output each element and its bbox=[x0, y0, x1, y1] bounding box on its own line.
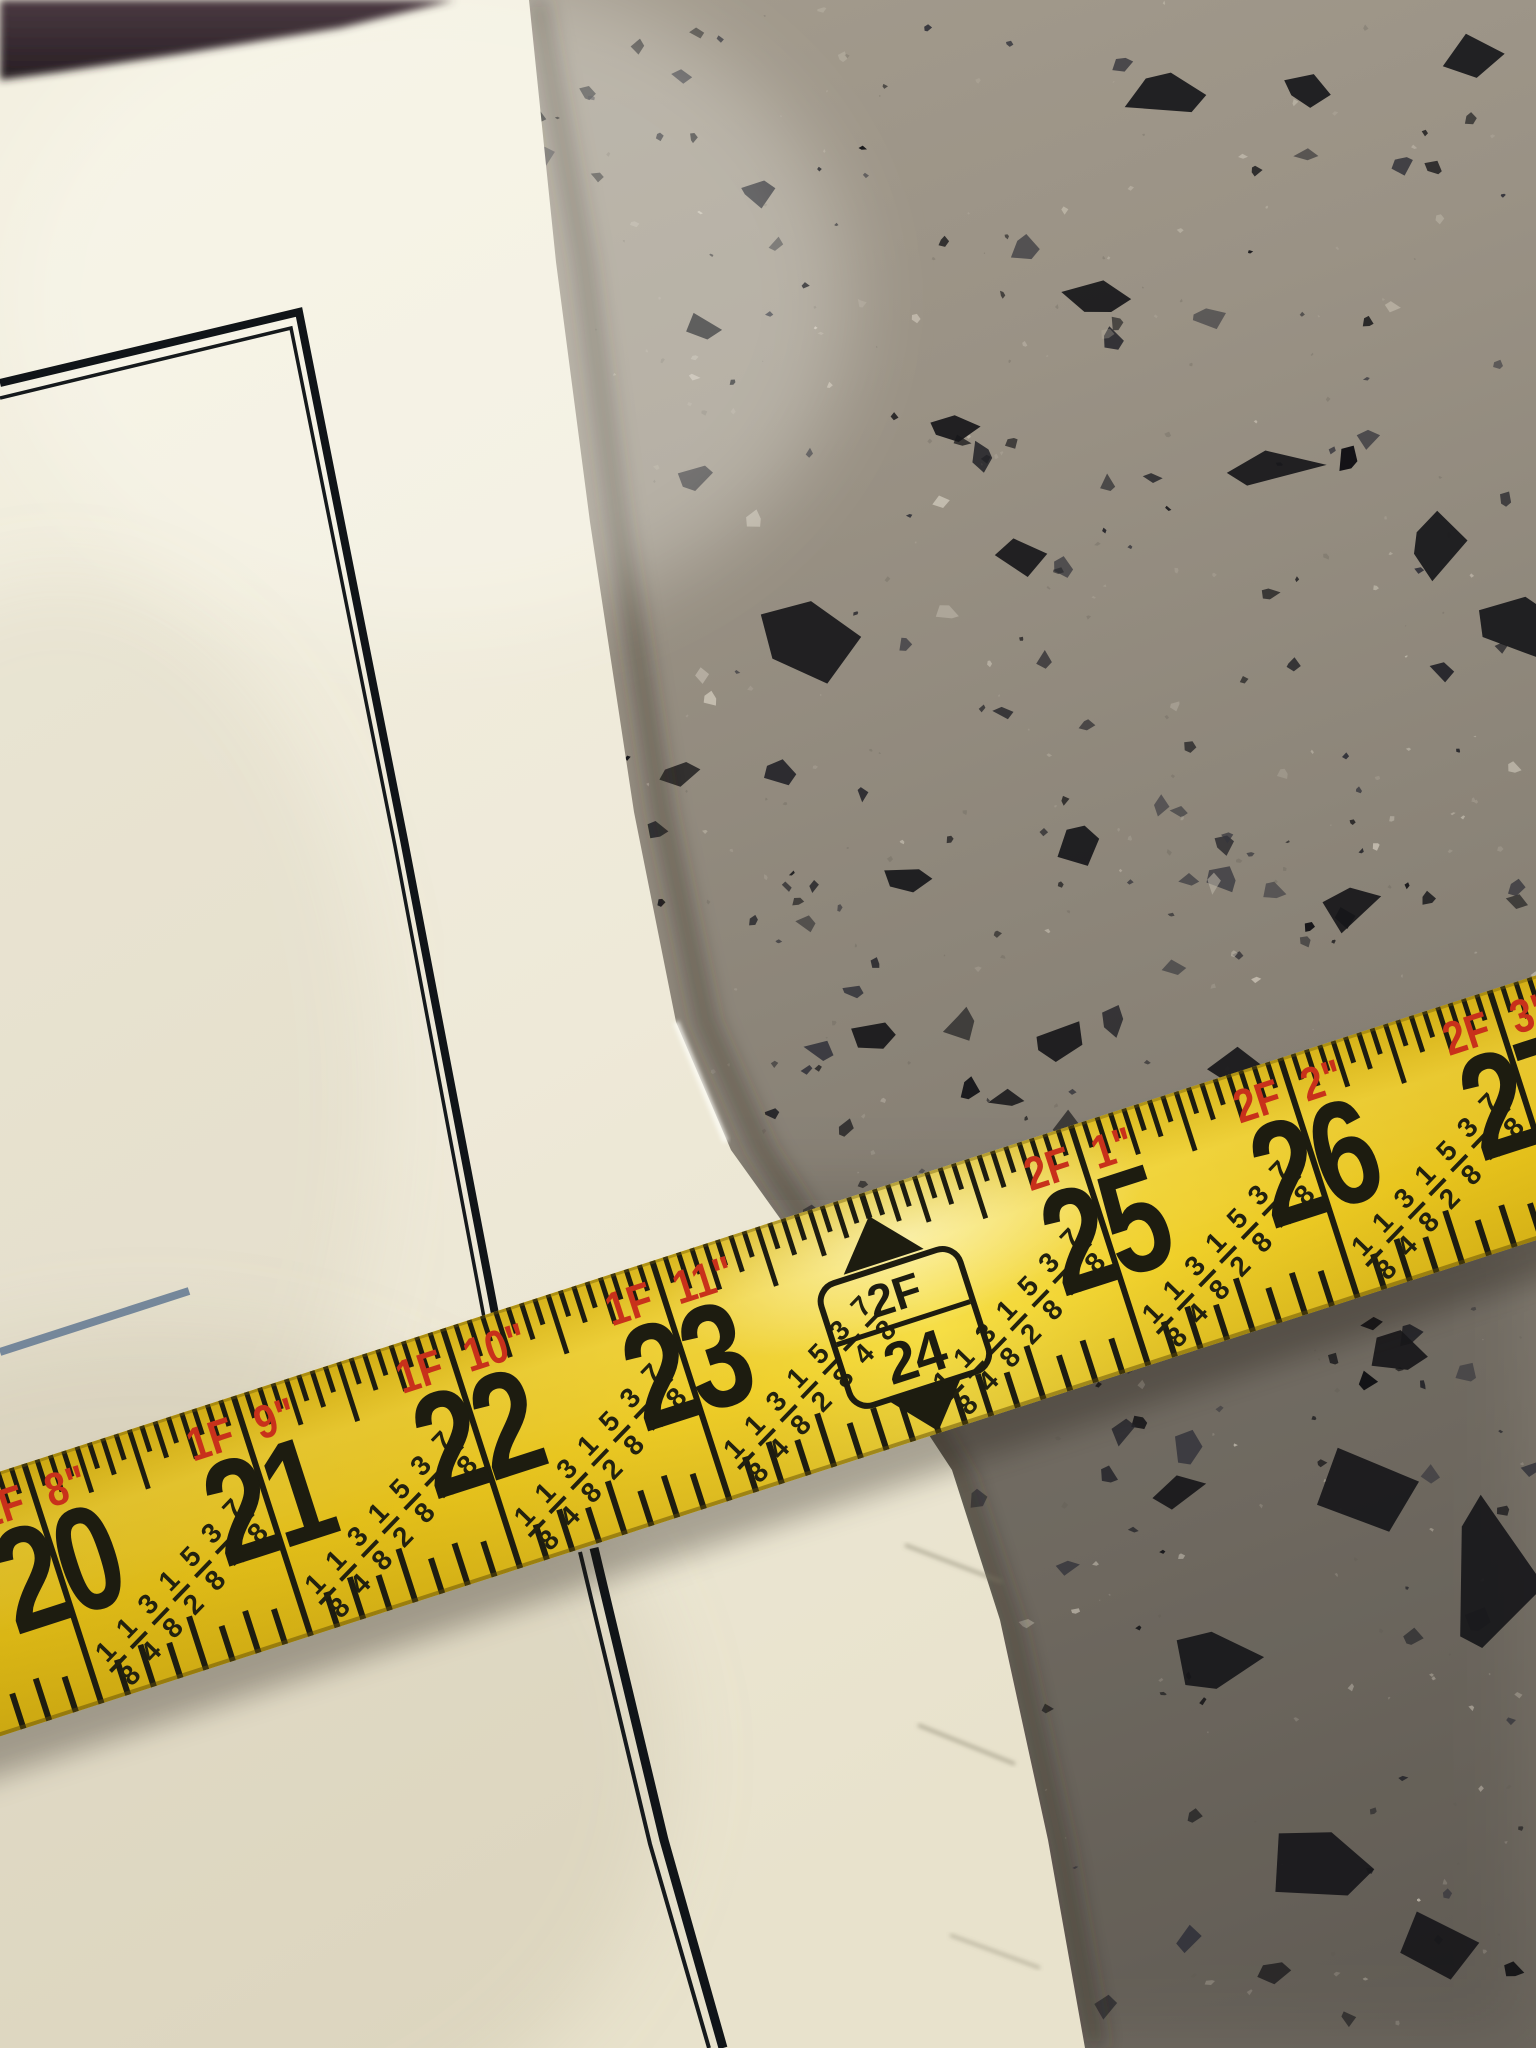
terrazzo-chip bbox=[927, 439, 932, 444]
terrazzo-chip bbox=[809, 880, 819, 893]
terrazzo-chip bbox=[1414, 567, 1424, 574]
terrazzo-chip bbox=[994, 454, 998, 459]
terrazzo-chip bbox=[1293, 99, 1299, 106]
terrazzo-chip bbox=[932, 496, 950, 509]
terrazzo-chip bbox=[878, 752, 881, 754]
terrazzo-chip bbox=[984, 253, 985, 255]
terrazzo-chip bbox=[1068, 1089, 1076, 1095]
terrazzo-chip bbox=[975, 78, 981, 84]
terrazzo-chip bbox=[711, 1069, 716, 1074]
terrazzo-chip bbox=[1112, 317, 1124, 330]
terrazzo-chip bbox=[1044, 929, 1050, 933]
terrazzo-chip bbox=[1497, 846, 1504, 852]
terrazzo-chip bbox=[1193, 308, 1226, 329]
terrazzo-chip bbox=[765, 798, 768, 801]
terrazzo-chip bbox=[1028, 728, 1030, 731]
terrazzo-chip bbox=[853, 611, 858, 616]
terrazzo-chip bbox=[820, 694, 822, 696]
terrazzo-chip bbox=[1323, 888, 1382, 934]
terrazzo-chip bbox=[1103, 584, 1107, 587]
terrazzo-chip bbox=[871, 1150, 876, 1155]
terrazzo-chip bbox=[1246, 852, 1254, 857]
terrazzo-chip bbox=[804, 1041, 834, 1061]
terrazzo-chip bbox=[695, 667, 709, 684]
terrazzo-chip bbox=[1300, 936, 1311, 947]
terrazzo-chip bbox=[939, 236, 950, 247]
terrazzo-chip bbox=[1127, 545, 1132, 549]
terrazzo-chip bbox=[1154, 314, 1158, 318]
terrazzo-chip bbox=[857, 1172, 859, 1174]
terrazzo-chip bbox=[1438, 476, 1442, 479]
terrazzo-chip bbox=[795, 915, 815, 932]
terrazzo-chip bbox=[1375, 776, 1381, 780]
terrazzo-chip bbox=[1024, 1116, 1028, 1121]
terrazzo-chip bbox=[817, 7, 826, 13]
terrazzo-chip bbox=[1430, 662, 1455, 682]
terrazzo-chip bbox=[823, 149, 826, 153]
terrazzo-chip bbox=[1384, 516, 1387, 520]
terrazzo-chip bbox=[1448, 849, 1453, 853]
terrazzo-chip bbox=[1473, 736, 1476, 738]
terrazzo-chip bbox=[1054, 805, 1057, 808]
terrazzo-chip bbox=[884, 869, 932, 892]
terrazzo-chip bbox=[702, 830, 708, 834]
terrazzo-chip bbox=[1180, 299, 1183, 303]
terrazzo-chip bbox=[704, 691, 717, 706]
terrazzo-chip bbox=[1326, 397, 1331, 402]
terrazzo-chip bbox=[944, 955, 946, 957]
floor-and-paper-layer bbox=[0, 0, 1536, 2048]
terrazzo-chip bbox=[1305, 922, 1315, 932]
terrazzo-chip bbox=[789, 871, 795, 876]
terrazzo-chip bbox=[764, 759, 796, 785]
terrazzo-chip bbox=[930, 415, 980, 442]
terrazzo-chip bbox=[839, 1118, 854, 1136]
terrazzo-chip bbox=[998, 694, 1000, 697]
terrazzo-chip bbox=[887, 856, 893, 862]
terrazzo-chip bbox=[837, 904, 842, 912]
terrazzo-chip bbox=[994, 931, 1002, 938]
terrazzo-chip bbox=[1102, 528, 1106, 534]
terrazzo-chip bbox=[1170, 701, 1180, 711]
terrazzo-chip bbox=[1406, 748, 1411, 751]
terrazzo-chip bbox=[1266, 206, 1269, 209]
terrazzo-chip bbox=[1011, 234, 1040, 259]
terrazzo-chip bbox=[932, 257, 936, 260]
terrazzo-chip bbox=[906, 514, 913, 518]
terrazzo-chip bbox=[1293, 148, 1318, 160]
terrazzo-chip bbox=[1117, 828, 1120, 832]
terrazzo-chip bbox=[1162, 960, 1187, 976]
terrazzo-chip bbox=[859, 146, 868, 150]
terrazzo-chip bbox=[1079, 719, 1096, 730]
terrazzo-chip bbox=[1163, 1, 1166, 6]
terrazzo-chip bbox=[1037, 1021, 1083, 1062]
terrazzo-chip bbox=[1405, 625, 1407, 626]
terrazzo-chip bbox=[1373, 843, 1380, 851]
terrazzo-chip bbox=[1363, 25, 1368, 31]
terrazzo-chip bbox=[686, 714, 689, 717]
terrazzo-chip bbox=[1000, 291, 1005, 299]
terrazzo-chip bbox=[1450, 812, 1455, 815]
terrazzo-chip bbox=[1252, 166, 1263, 177]
terrazzo-chip bbox=[1490, 134, 1495, 138]
terrazzo-chip bbox=[1128, 835, 1133, 840]
terrazzo-chip bbox=[775, 939, 782, 943]
terrazzo-chip bbox=[1174, 568, 1178, 574]
terrazzo-chip bbox=[1047, 586, 1051, 590]
terrazzo-chip bbox=[1236, 858, 1242, 863]
terrazzo-chip bbox=[869, 749, 873, 752]
terrazzo-chip bbox=[858, 299, 867, 308]
terrazzo-chip bbox=[1456, 749, 1460, 753]
terrazzo-chip bbox=[1165, 715, 1170, 719]
terrazzo-chip bbox=[1272, 880, 1278, 885]
terrazzo-chip bbox=[992, 707, 1013, 719]
terrazzo-chip bbox=[908, 1061, 912, 1065]
terrazzo-chip bbox=[780, 115, 782, 117]
terrazzo-chip bbox=[885, 576, 891, 582]
terrazzo-chip bbox=[1167, 849, 1172, 856]
terrazzo-chip bbox=[1005, 234, 1009, 239]
terrazzo-chip bbox=[1128, 186, 1134, 191]
terrazzo-chip bbox=[1318, 315, 1321, 317]
terrazzo-chip bbox=[1055, 304, 1059, 309]
terrazzo-chip bbox=[1392, 157, 1413, 176]
terrazzo-chip bbox=[988, 1089, 1024, 1106]
terrazzo-chip bbox=[1008, 360, 1011, 363]
terrazzo-chip bbox=[735, 670, 741, 674]
terrazzo-chip bbox=[883, 84, 889, 89]
terrazzo-chip bbox=[855, 943, 857, 947]
terrazzo-chip bbox=[1022, 341, 1027, 347]
paper-highlight-top bbox=[10, 0, 850, 630]
terrazzo-chip bbox=[1382, 298, 1385, 301]
terrazzo-chip bbox=[792, 898, 804, 906]
terrazzo-chip bbox=[1000, 955, 1005, 959]
terrazzo-chip bbox=[1142, 134, 1145, 137]
terrazzo-chip bbox=[1311, 353, 1314, 356]
terrazzo-chip bbox=[1277, 769, 1288, 779]
terrazzo-chip bbox=[1171, 774, 1175, 778]
terrazzo-chip bbox=[1100, 474, 1115, 492]
terrazzo-chip bbox=[1436, 214, 1445, 224]
terrazzo-chip bbox=[1177, 228, 1184, 233]
terrazzo-chip bbox=[943, 1007, 974, 1041]
terrazzo-chip bbox=[1295, 576, 1299, 582]
terrazzo-chip bbox=[806, 448, 813, 458]
terrazzo-chip bbox=[858, 1181, 869, 1188]
terrazzo-chip bbox=[900, 840, 905, 845]
terrazzo-chip bbox=[1422, 130, 1428, 137]
terrazzo-chip bbox=[1240, 676, 1249, 684]
terrazzo-chip bbox=[832, 1021, 837, 1026]
terrazzo-chip bbox=[879, 95, 881, 97]
terrazzo-chip bbox=[1067, 910, 1071, 913]
terrazzo-chip bbox=[847, 847, 849, 849]
terrazzo-chip bbox=[826, 90, 828, 92]
terrazzo-chip bbox=[987, 661, 992, 668]
terrazzo-chip bbox=[1312, 1029, 1314, 1031]
terrazzo-chip bbox=[782, 882, 792, 892]
terrazzo-chip bbox=[1127, 879, 1134, 884]
terrazzo-chip bbox=[771, 1061, 779, 1068]
terrazzo-chip bbox=[1411, 145, 1417, 149]
terrazzo-chip bbox=[826, 1037, 828, 1039]
terrazzo-chip bbox=[871, 957, 880, 968]
terrazzo-chip bbox=[765, 1108, 780, 1119]
terrazzo-chip bbox=[685, 790, 687, 793]
terrazzo-chip bbox=[1119, 869, 1123, 873]
terrazzo-chip bbox=[1125, 73, 1207, 113]
terrazzo-chip bbox=[1154, 794, 1170, 816]
terrazzo-chip bbox=[1389, 816, 1394, 822]
terrazzo-chip bbox=[1424, 161, 1441, 175]
terrazzo-chip bbox=[1170, 806, 1188, 818]
terrazzo-chip bbox=[1006, 41, 1013, 47]
terrazzo-chip bbox=[1508, 761, 1521, 773]
terrazzo-chip bbox=[842, 986, 863, 998]
terrazzo-chip bbox=[1332, 111, 1338, 116]
terrazzo-chip bbox=[707, 900, 711, 905]
terrazzo-chip bbox=[861, 1114, 865, 1119]
terrazzo-chip bbox=[858, 787, 869, 802]
terrazzo-chip bbox=[1339, 446, 1357, 471]
terrazzo-chip bbox=[761, 601, 861, 684]
terrazzo-chip bbox=[1112, 58, 1133, 72]
terrazzo-chip bbox=[730, 849, 734, 853]
terrazzo-chip bbox=[899, 638, 912, 651]
terrazzo-chip bbox=[1248, 250, 1253, 253]
terrazzo-chip bbox=[1311, 750, 1314, 755]
terrazzo-chip bbox=[1184, 741, 1196, 753]
terrazzo-chip bbox=[1036, 650, 1052, 669]
terrazzo-chip bbox=[1356, 786, 1362, 793]
terrazzo-chip bbox=[1342, 752, 1349, 759]
terrazzo-chip bbox=[801, 1065, 813, 1075]
terrazzo-chip bbox=[1329, 446, 1336, 454]
terrazzo-chip bbox=[1164, 432, 1171, 438]
terrazzo-chip bbox=[947, 836, 954, 843]
terrazzo-chip bbox=[717, 35, 724, 42]
terrazzo-chip bbox=[1054, 556, 1073, 578]
terrazzo-chip bbox=[1443, 34, 1505, 78]
terrazzo-chip bbox=[936, 605, 959, 618]
terrazzo-chip bbox=[967, 212, 970, 215]
terrazzo-chip bbox=[838, 51, 847, 62]
terrazzo-chip bbox=[1254, 420, 1258, 424]
terrazzo-chip bbox=[1500, 492, 1511, 507]
terrazzo-chip bbox=[1357, 430, 1380, 450]
terrazzo-chip bbox=[979, 705, 986, 713]
terrazzo-chip bbox=[1189, 363, 1192, 367]
terrazzo-chip bbox=[657, 899, 665, 907]
terrazzo-chip bbox=[1046, 355, 1049, 357]
terrazzo-chip bbox=[1168, 913, 1175, 917]
terrazzo-chip bbox=[1238, 154, 1248, 159]
terrazzo-chip bbox=[1262, 589, 1281, 600]
terrazzo-chip bbox=[1112, 81, 1114, 83]
terrazzo-chip bbox=[747, 686, 753, 691]
terrazzo-chip bbox=[1178, 873, 1199, 886]
terrazzo-chip bbox=[1040, 828, 1049, 836]
terrazzo-chip bbox=[924, 24, 932, 31]
terrazzo-chip bbox=[1251, 977, 1261, 983]
terrazzo-chip bbox=[1212, 573, 1217, 578]
terrazzo-chip bbox=[1493, 360, 1503, 369]
terrazzo-chip bbox=[1330, 824, 1332, 825]
terrazzo-chip bbox=[1284, 74, 1331, 108]
terrazzo-chip bbox=[734, 988, 737, 991]
terrazzo-chip bbox=[995, 538, 1048, 577]
terrazzo-chip bbox=[963, 810, 967, 815]
terrazzo-chip bbox=[1335, 247, 1339, 251]
terrazzo-chip bbox=[1283, 867, 1287, 871]
terrazzo-chip bbox=[1359, 848, 1364, 853]
terrazzo-chip bbox=[1092, 596, 1097, 599]
terrazzo-chip bbox=[1211, 984, 1216, 989]
terrazzo-chip bbox=[1474, 952, 1477, 954]
terrazzo-chip bbox=[1054, 1103, 1058, 1108]
terrazzo-chip bbox=[1287, 657, 1301, 671]
terrazzo-chip bbox=[1061, 796, 1069, 806]
terrazzo-chip bbox=[880, 1098, 886, 1103]
terrazzo-chip bbox=[1094, 542, 1101, 546]
terrazzo-chip bbox=[1102, 1005, 1123, 1038]
terrazzo-chip bbox=[1058, 881, 1064, 887]
terrazzo-chip bbox=[689, 28, 704, 39]
terrazzo-chip bbox=[1363, 377, 1370, 381]
terrazzo-chip bbox=[763, 15, 765, 17]
terrazzo-chip bbox=[891, 412, 899, 420]
terrazzo-chip bbox=[1000, 451, 1004, 455]
terrazzo-chip bbox=[1058, 826, 1100, 866]
terrazzo-chip bbox=[1465, 112, 1477, 124]
terrazzo-chip bbox=[1373, 585, 1379, 590]
terrazzo-chip bbox=[974, 966, 982, 972]
terrazzo-chip bbox=[1227, 451, 1327, 486]
terrazzo-chip bbox=[1501, 194, 1506, 198]
photo-scene: 1814381258347818143812583478181438125834… bbox=[0, 0, 1536, 2048]
terrazzo-chip bbox=[1331, 940, 1335, 944]
terrazzo-chip bbox=[1461, 815, 1466, 819]
terrazzo-chip bbox=[851, 1023, 896, 1049]
terrazzo-chip bbox=[1423, 891, 1437, 905]
terrazzo-chip bbox=[1363, 316, 1374, 327]
terrazzo-chip bbox=[1107, 256, 1110, 259]
terrazzo-chip bbox=[813, 765, 818, 769]
terrazzo-chip bbox=[1414, 258, 1416, 260]
terrazzo-chip bbox=[1350, 819, 1356, 825]
terrazzo-chip bbox=[1388, 885, 1392, 889]
terrazzo-chip bbox=[1405, 655, 1408, 658]
terrazzo-chip bbox=[972, 441, 992, 473]
terrazzo-chip bbox=[1385, 301, 1401, 312]
terrazzo-chip bbox=[1300, 312, 1305, 317]
terrazzo-chip bbox=[1144, 1060, 1151, 1065]
terrazzo-chip bbox=[814, 1065, 822, 1072]
terrazzo-chip bbox=[912, 314, 921, 323]
terrazzo-chip bbox=[1142, 287, 1144, 289]
terrazzo-chip bbox=[1506, 894, 1528, 909]
terrazzo-chip bbox=[783, 802, 788, 805]
terrazzo-chip bbox=[1086, 615, 1091, 619]
terrazzo-chip bbox=[1019, 637, 1023, 641]
terrazzo-chip bbox=[1401, 974, 1403, 978]
terrazzo-chip bbox=[961, 1076, 981, 1099]
terrazzo-chip bbox=[1061, 206, 1068, 214]
terrazzo-chip bbox=[1508, 879, 1526, 896]
terrazzo-chip bbox=[1405, 882, 1410, 889]
terrazzo-chip bbox=[1165, 506, 1171, 511]
terrazzo-chip bbox=[863, 173, 869, 178]
terrazzo-chip bbox=[1103, 256, 1106, 259]
terrazzo-chip bbox=[1046, 753, 1052, 757]
terrazzo-chip bbox=[1061, 280, 1131, 312]
terrazzo-chip bbox=[915, 541, 917, 543]
terrazzo-chip bbox=[1285, 840, 1290, 843]
terrazzo-chip bbox=[749, 915, 758, 926]
terrazzo-chip bbox=[764, 874, 768, 880]
terrazzo-chip bbox=[1215, 836, 1234, 856]
terrazzo-chip bbox=[817, 167, 822, 172]
terrazzo-chip bbox=[1442, 612, 1444, 615]
terrazzo-chip bbox=[1479, 597, 1536, 658]
terrazzo-chip bbox=[1005, 438, 1018, 449]
terrazzo-chip bbox=[1143, 473, 1163, 483]
terrazzo-chip bbox=[1470, 573, 1475, 577]
terrazzo-chip bbox=[876, 346, 877, 348]
terrazzo-chip bbox=[1389, 552, 1394, 556]
terrazzo-chip bbox=[1323, 554, 1329, 560]
